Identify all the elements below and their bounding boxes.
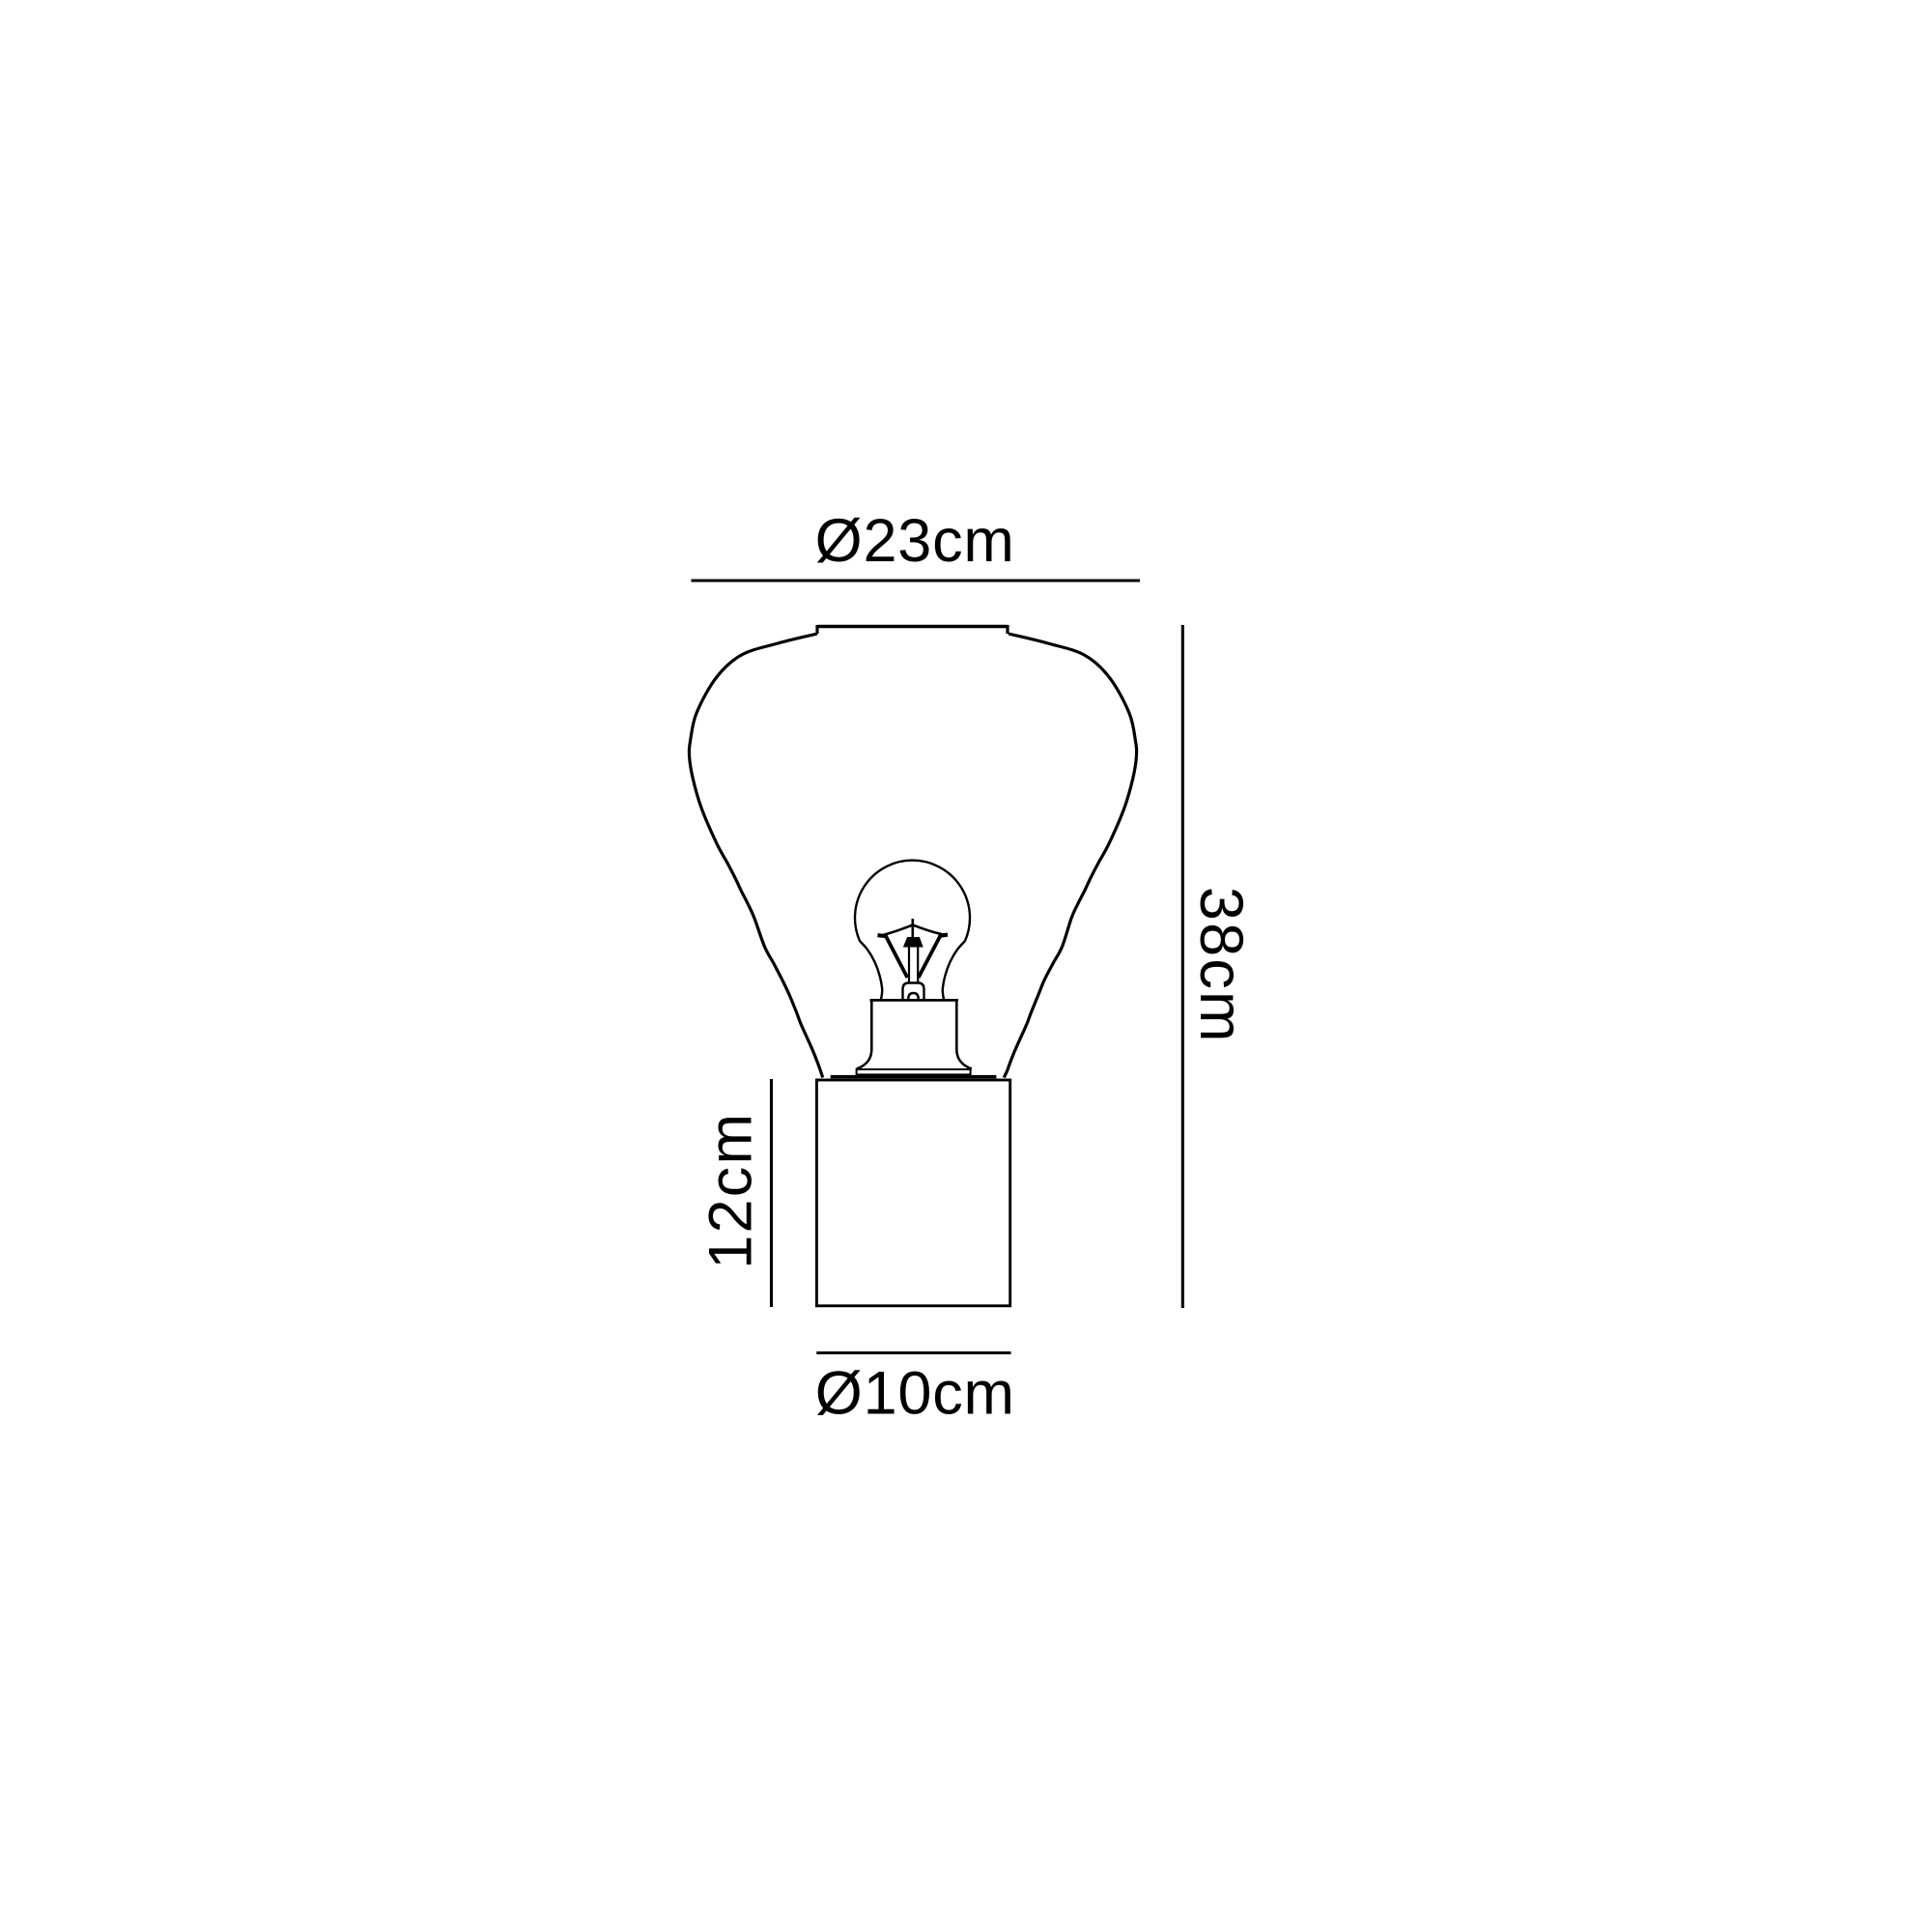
svg-text:38cm: 38cm <box>1187 887 1255 1044</box>
svg-text:Ø10cm: Ø10cm <box>815 1360 1015 1428</box>
svg-text:12cm: 12cm <box>697 1112 765 1269</box>
svg-text:Ø23cm: Ø23cm <box>815 507 1015 575</box>
